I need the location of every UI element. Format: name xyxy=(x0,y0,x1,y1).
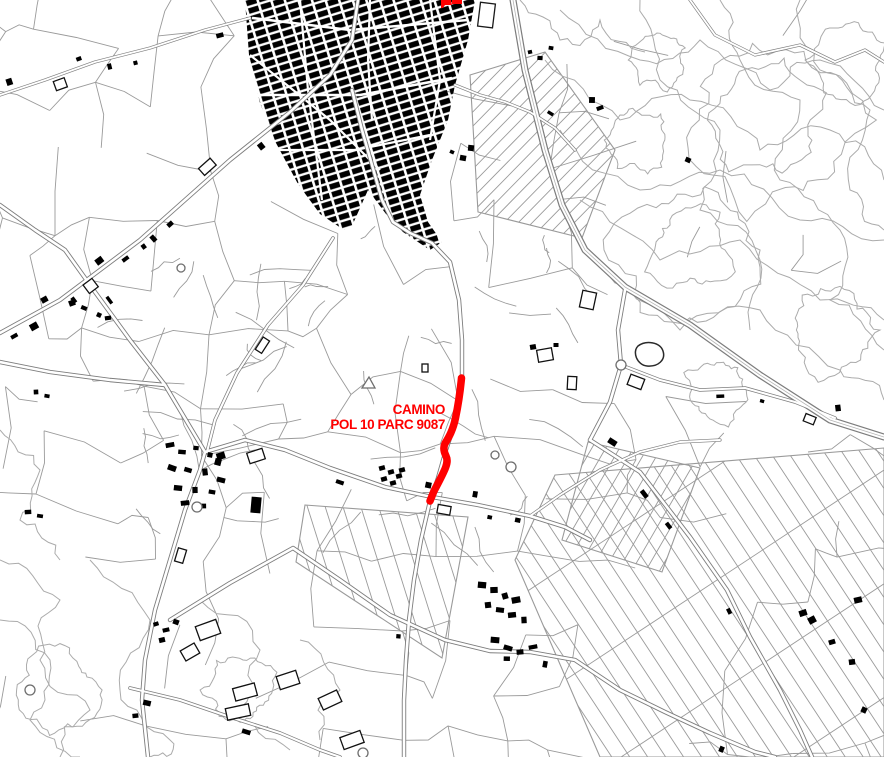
large-building-outline xyxy=(635,343,663,367)
map-viewport[interactable]: CAMINO POL 10 PARC 9087 xyxy=(0,0,884,757)
water-tank-circle xyxy=(491,451,499,459)
cadastral-map-canvas xyxy=(0,0,884,757)
building-outline xyxy=(478,2,496,28)
water-tank-circle xyxy=(25,685,35,695)
water-tank-circle xyxy=(358,748,368,757)
highlighted-route xyxy=(430,378,462,501)
water-tank-circle xyxy=(177,264,185,272)
roundabout-circle xyxy=(616,360,626,370)
water-tank-circle xyxy=(506,462,516,472)
water-tank-circle xyxy=(192,502,202,512)
